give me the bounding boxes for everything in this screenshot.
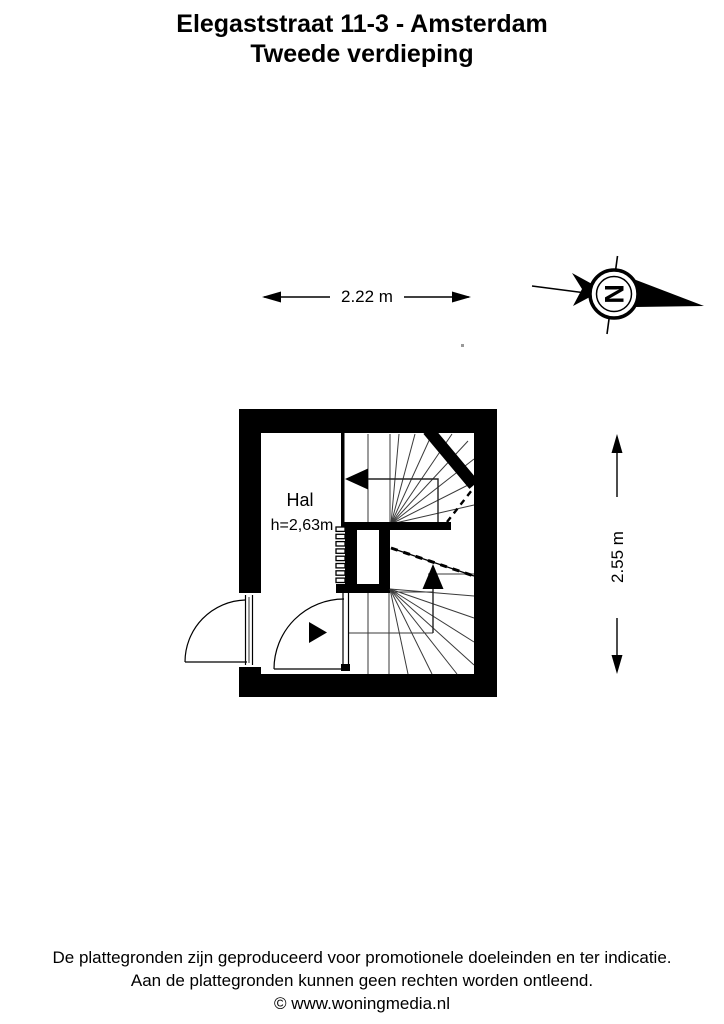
entrance-door [185, 595, 253, 665]
stair-closet-walls [336, 530, 390, 593]
radiator-comb-symbol [336, 527, 346, 584]
copyright-line: © www.woningmedia.nl [0, 992, 724, 1015]
print-speck [461, 344, 464, 347]
stair-direction-arrow-left [345, 469, 368, 490]
entrance-direction-triangle [309, 622, 327, 643]
depth-dimension-label: 2.55 m [608, 507, 628, 607]
compass-north-letter: N [594, 274, 634, 314]
width-dimension-label: 2.22 m [317, 287, 417, 307]
upper-staircase [341, 430, 474, 530]
room-label-hal: Hal [250, 490, 350, 510]
disclaimer-line-1: De plattegronden zijn geproduceerd voor … [0, 946, 724, 969]
stair-direction-arrow-up [423, 564, 444, 589]
disclaimer-line-2: Aan de plattegronden kunnen geen rechten… [0, 969, 724, 992]
lower-staircase [348, 548, 474, 674]
floor-plan-page: Elegaststraat 11-3 - Amsterdam Tweede ve… [0, 0, 724, 1024]
room-ceiling-height-label: h=2,63m [250, 516, 354, 535]
